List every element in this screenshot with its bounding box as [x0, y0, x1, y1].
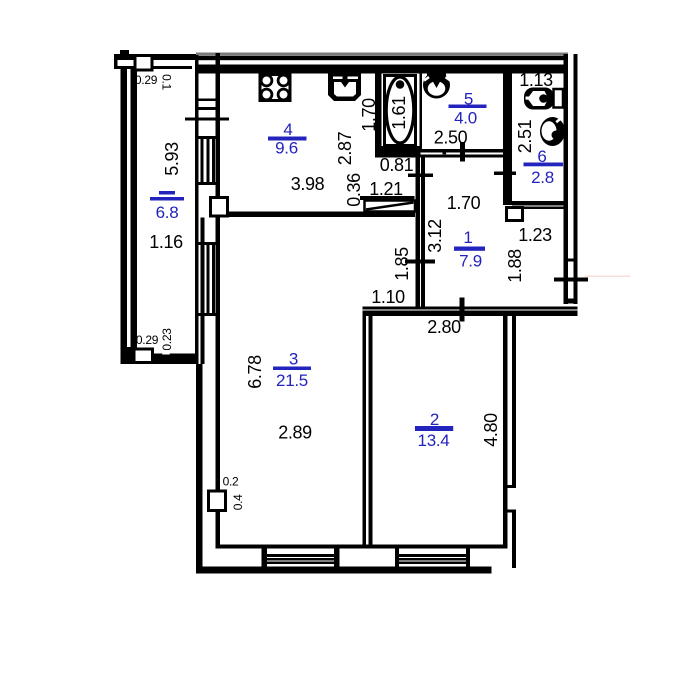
svg-text:1.21: 1.21 [369, 179, 403, 199]
svg-text:2.51: 2.51 [515, 119, 535, 153]
svg-text:9.6: 9.6 [275, 139, 298, 158]
svg-text:3.98: 3.98 [291, 174, 325, 194]
svg-text:2.50: 2.50 [434, 128, 468, 148]
svg-text:4.0: 4.0 [454, 109, 477, 128]
svg-text:0.4: 0.4 [231, 494, 245, 510]
svg-text:0.1: 0.1 [160, 74, 174, 90]
svg-text:1.70: 1.70 [447, 193, 481, 213]
svg-text:1.23: 1.23 [518, 225, 552, 245]
svg-text:1.88: 1.88 [505, 249, 525, 283]
svg-text:7.9: 7.9 [459, 252, 482, 271]
svg-text:1: 1 [463, 228, 472, 247]
svg-text:3.12: 3.12 [425, 219, 445, 253]
svg-text:6.8: 6.8 [156, 203, 179, 222]
svg-text:2.87: 2.87 [335, 131, 355, 165]
svg-text:4: 4 [283, 120, 292, 139]
svg-text:5.93: 5.93 [162, 142, 182, 176]
svg-text:6.78: 6.78 [245, 355, 265, 389]
svg-text:0.2: 0.2 [223, 475, 239, 489]
svg-text:13.4: 13.4 [418, 431, 450, 450]
svg-text:0.36: 0.36 [344, 173, 364, 207]
svg-text:21.5: 21.5 [276, 371, 308, 390]
svg-text:0.29: 0.29 [135, 73, 158, 87]
svg-text:1.85: 1.85 [392, 247, 412, 281]
svg-text:1.10: 1.10 [371, 287, 405, 307]
svg-text:0.29: 0.29 [136, 333, 159, 347]
svg-text:3: 3 [289, 350, 298, 369]
svg-text:4.80: 4.80 [481, 413, 501, 447]
svg-text:2.80: 2.80 [427, 317, 461, 337]
svg-text:1.13: 1.13 [519, 70, 553, 90]
svg-text:1.16: 1.16 [149, 232, 183, 252]
svg-text:1.61: 1.61 [389, 96, 409, 130]
svg-text:2.8: 2.8 [531, 168, 554, 187]
svg-text:0.23: 0.23 [160, 328, 174, 351]
svg-text:1.70: 1.70 [359, 98, 379, 132]
svg-text:0.81: 0.81 [380, 155, 414, 175]
svg-text:2.89: 2.89 [278, 423, 312, 443]
